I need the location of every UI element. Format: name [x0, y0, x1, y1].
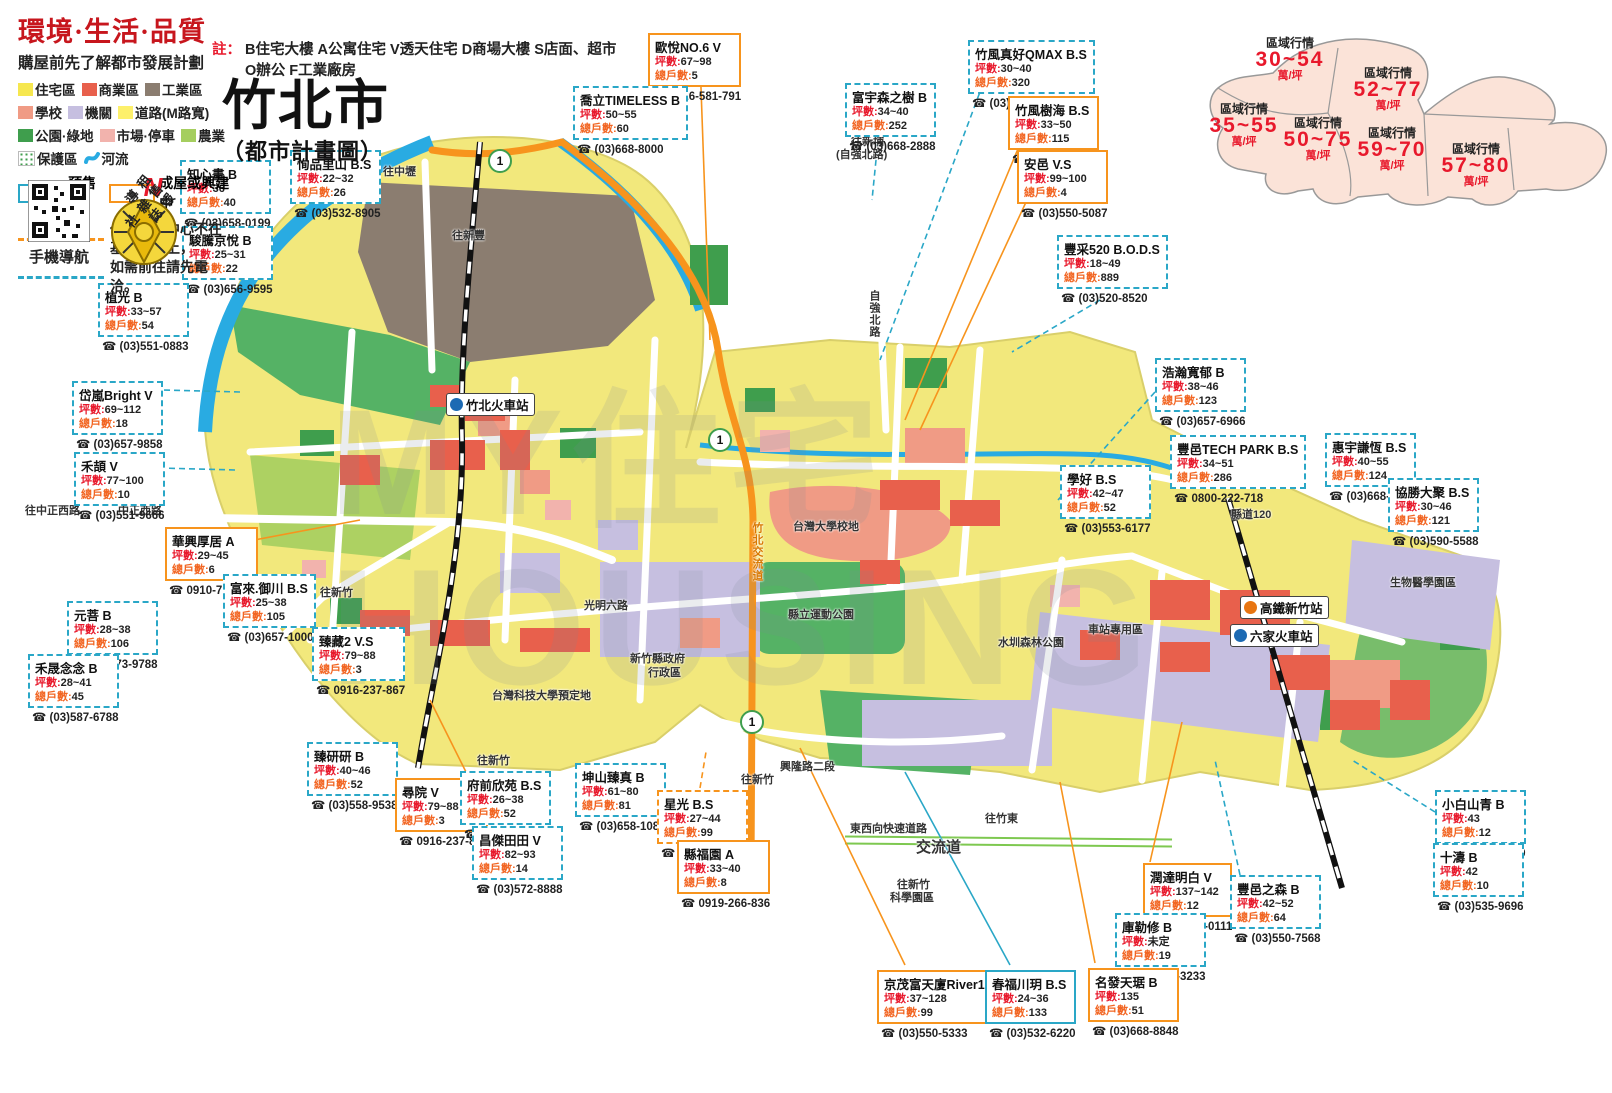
listing-callout[interactable]: 春福川玥 B.S坪數:24~36總戶數:133☎ (03)532-6220 [985, 970, 1076, 1040]
units-label: 總戶數: [1122, 950, 1159, 962]
units-value: 3 [356, 664, 362, 676]
listing-phone[interactable]: ☎ (03)668-8000 [573, 142, 688, 156]
ping-value: 25~38 [256, 597, 287, 609]
zone-unit: 萬/坪 [1256, 70, 1325, 83]
listing-box[interactable]: 歐悅NO.6 V坪數:67~98總戶數:5 [648, 33, 741, 87]
units-label: 總戶數: [1067, 502, 1104, 514]
ping-value: 40~46 [340, 765, 371, 777]
ping-value: 30~46 [1421, 501, 1452, 513]
listing-name: 富宇森之樹 B [852, 87, 928, 106]
listing-name: 禾頡 V [81, 456, 157, 475]
listing-units: 總戶數:121 [1395, 515, 1471, 529]
map-label: 交流道 [916, 836, 961, 857]
listing-units: 總戶數:52 [467, 808, 543, 822]
listing-units: 總戶數:54 [105, 320, 181, 334]
map-label: 往中正西路 [25, 502, 80, 518]
listing-ping: 坪數:79~88 [319, 650, 397, 664]
listing-name: 安邑 V.S [1024, 154, 1100, 173]
listing-ping: 坪數:69~112 [79, 404, 155, 418]
listing-box[interactable]: 昌傑田田 V坪數:82~93總戶數:14 [472, 826, 563, 880]
legend-swatch-color [68, 106, 83, 119]
listing-phone[interactable]: ☎ (03)668-8848 [1088, 1024, 1179, 1038]
ping-value: 50~55 [606, 109, 637, 121]
listing-name: 小白山青 B [1442, 794, 1518, 813]
qr-caption: 手機導航 [28, 246, 90, 267]
units-label: 總戶數: [319, 664, 356, 676]
listing-name: 庫勒修 B [1122, 917, 1198, 936]
listing-callout[interactable]: 禾頡 V坪數:77~100總戶數:10☎ (03)551-9666 [74, 452, 165, 522]
listing-box[interactable]: 富來.御川 B.S坪數:25~38總戶數:105 [223, 574, 316, 628]
legend-swatch-color [100, 129, 115, 142]
listing-ping: 坪數:42~52 [1237, 898, 1313, 912]
units-label: 總戶數: [314, 779, 351, 791]
listing-phone[interactable]: ☎ (03)535-9696 [1433, 899, 1524, 913]
price-zone: 區域行情30~54萬/坪 [1256, 37, 1325, 83]
units-value: 123 [1199, 395, 1217, 407]
legend-swatch-river [84, 151, 100, 165]
map-label: 縣道120 [1231, 506, 1271, 522]
ping-value: 61~80 [608, 786, 639, 798]
price-zone: 區域行情59~70萬/坪 [1358, 127, 1427, 173]
ping-label: 坪數: [172, 550, 198, 562]
units-label: 總戶數: [1015, 133, 1052, 145]
ping-value: 99~100 [1050, 173, 1087, 185]
listing-name: 潤達明白 V [1150, 867, 1224, 886]
legend-label: 道路(M路寬) [135, 102, 209, 122]
zone-unit: 萬/坪 [1284, 150, 1353, 163]
listing-box[interactable]: 豐采520 B.O.D.S坪數:18~49總戶數:889 [1057, 235, 1168, 289]
listing-phone[interactable]: ☎ 0800-222-718 [1170, 491, 1306, 505]
qr-block: 手機導航 [28, 180, 90, 267]
listing-units: 總戶數:52 [1067, 502, 1143, 516]
map-label: 往新竹 [741, 771, 774, 787]
listing-ping: 坪數:18~49 [1064, 258, 1160, 272]
ping-label: 坪數: [81, 475, 107, 487]
units-value: 124 [1369, 470, 1387, 482]
listing-ping: 坪數:40~55 [1332, 456, 1408, 470]
listing-ping: 坪數:77~100 [81, 475, 157, 489]
listing-callout[interactable]: 學好 B.S坪數:42~47總戶數:52☎ (03)553-6177 [1060, 465, 1151, 535]
listing-name: 岱嵐Bright V [79, 385, 155, 404]
route-shield: 1 [740, 710, 764, 734]
listing-phone[interactable]: ☎ (03)657-1000 [223, 630, 316, 644]
listing-callout[interactable]: 豐邑TECH PARK B.S坪數:34~51總戶數:286☎ 0800-222… [1170, 435, 1306, 505]
cyan-dash-sample [18, 276, 104, 279]
map-label: 東西向快速道路 [850, 820, 927, 836]
listing-units: 總戶數:26 [297, 187, 373, 201]
map-label: 台灣科技大學預定地 [492, 687, 591, 703]
units-value: 10 [118, 489, 130, 501]
ping-label: 坪數: [582, 786, 608, 798]
legend-swatch-color [18, 106, 33, 119]
legend-label: 公園·綠地 [35, 125, 94, 145]
units-value: 106 [111, 638, 129, 650]
listing-units: 總戶數:81 [582, 800, 658, 814]
ping-value: 37~128 [910, 993, 947, 1005]
units-value: 4 [1061, 187, 1067, 199]
legend-item: 道路(M路寬) [118, 102, 209, 122]
ping-value: 28~38 [100, 624, 131, 636]
units-value: 3 [439, 815, 445, 827]
listing-phone[interactable]: ☎ (03)550-7568 [1230, 931, 1321, 945]
units-value: 52 [351, 779, 363, 791]
units-label: 總戶數: [1177, 472, 1214, 484]
units-value: 45 [72, 691, 84, 703]
units-label: 總戶數: [1095, 1005, 1132, 1017]
listing-phone[interactable]: ☎ (03)657-6966 [1155, 414, 1246, 428]
ping-label: 坪數: [297, 173, 323, 185]
listing-name: 臻藏2 V.S [319, 631, 397, 650]
listing-ping: 坪數:29~45 [172, 550, 250, 564]
listing-ping: 坪數:33~50 [1015, 119, 1091, 133]
listing-ping: 坪數:135 [1095, 991, 1171, 1005]
listing-phone[interactable]: ☎ (03)587-6788 [28, 710, 119, 724]
units-value: 26 [334, 187, 346, 199]
listing-box[interactable]: 星光 B.S坪數:27~44總戶數:99 [657, 790, 748, 844]
listing-phone[interactable]: ☎ (03)550-5087 [1017, 206, 1108, 220]
map-label: 光明六路 [584, 597, 628, 613]
listing-units: 總戶數:115 [1015, 133, 1091, 147]
units-label: 總戶數: [1440, 880, 1477, 892]
listing-units: 總戶數:18 [79, 418, 155, 432]
units-value: 54 [142, 320, 154, 332]
listing-phone[interactable]: ☎ (03)551-0883 [98, 339, 189, 353]
ping-label: 坪數: [852, 106, 878, 118]
ping-label: 坪數: [1024, 173, 1050, 185]
listing-ping: 坪數:27~44 [664, 813, 740, 827]
units-label: 總戶數: [884, 1007, 921, 1019]
units-label: 總戶數: [479, 863, 516, 875]
listing-box[interactable]: 富宇森之樹 B坪數:34~40總戶數:252 [845, 83, 936, 137]
listing-ping: 坪數:33~57 [105, 306, 181, 320]
station-marker: 竹北火車站 [446, 393, 535, 416]
listing-ping: 坪數:25~38 [230, 597, 308, 611]
listing-box[interactable]: 名發天琚 B坪數:135總戶數:51 [1088, 968, 1179, 1022]
units-value: 99 [701, 827, 713, 839]
units-label: 總戶數: [79, 418, 116, 430]
listing-callout[interactable]: 名發天琚 B坪數:135總戶數:51☎ (03)668-8848 [1088, 968, 1179, 1038]
legend-swatch-color [145, 83, 160, 96]
legend-item: 機關 [68, 102, 112, 122]
units-label: 總戶數: [35, 691, 72, 703]
listing-callout[interactable]: 安邑 V.S坪數:99~100總戶數:4☎ (03)550-5087 [1017, 150, 1108, 220]
legend-label: 保護區 [37, 148, 78, 168]
listing-box[interactable]: 坤山臻真 B坪數:61~80總戶數:81 [575, 763, 666, 817]
listing-phone[interactable]: ☎ (03)657-9858 [72, 437, 163, 451]
ping-label: 坪數: [1095, 991, 1121, 1003]
units-label: 總戶數: [852, 120, 889, 132]
units-value: 64 [1274, 912, 1286, 924]
units-value: 99 [921, 1007, 933, 1019]
listing-box[interactable]: 喬立TIMELESS B坪數:50~55總戶數:60 [573, 86, 688, 140]
listing-units: 總戶數:4 [1024, 187, 1100, 201]
units-label: 總戶數: [582, 800, 619, 812]
units-label: 總戶數: [1150, 900, 1187, 912]
legend-swatch-color [118, 106, 133, 119]
units-value: 121 [1432, 515, 1450, 527]
listing-box[interactable]: 臻藏2 V.S坪數:79~88總戶數:3 [312, 627, 405, 681]
listing-callout[interactable]: 臻研研 B坪數:40~46總戶數:52☎ (03)558-9538 [307, 742, 398, 812]
listing-phone[interactable]: ☎ 0919-266-836 [677, 896, 770, 910]
note-line1: B住宅大樓 A公寓住宅 V透天住宅 D商場大樓 S店面、超市 [245, 42, 616, 58]
listing-units: 總戶數:51 [1095, 1005, 1171, 1019]
legend-item: 公園·綠地 [18, 125, 94, 145]
listing-name: 竹風樹海 B.S [1015, 100, 1091, 119]
listing-ping: 坪數:42 [1440, 866, 1516, 880]
listing-box[interactable]: 學好 B.S坪數:42~47總戶數:52 [1060, 465, 1151, 519]
ping-value: 79~88 [345, 650, 376, 662]
units-value: 105 [267, 611, 285, 623]
listing-box[interactable]: 禾晟念念 B坪數:28~41總戶數:45 [28, 654, 119, 708]
zone-range: 35~55 [1210, 116, 1279, 136]
listing-phone[interactable]: ☎ (03)553-6177 [1060, 521, 1151, 535]
ping-value: 42 [1466, 866, 1478, 878]
listing-units: 總戶數:8 [684, 877, 762, 891]
listing-box[interactable]: 岱嵐Bright V坪數:69~112總戶數:18 [72, 381, 163, 435]
map-label: 生物醫學園區 [1390, 574, 1456, 590]
page-subtitle: （都市計畫圖） [222, 134, 390, 166]
units-label: 總戶數: [1395, 515, 1432, 527]
listing-name: 坤山臻真 B [582, 767, 658, 786]
listing-box[interactable]: 華興厚居 A坪數:29~45總戶數:6 [165, 527, 258, 581]
listing-ping: 坪數:82~93 [479, 849, 555, 863]
listing-units: 總戶數:64 [1237, 912, 1313, 926]
units-label: 總戶數: [81, 489, 118, 501]
listing-ping: 坪數:28~41 [35, 677, 111, 691]
listing-phone[interactable]: ☎ (03)551-9666 [74, 508, 165, 522]
map-label: 往新豐 [452, 227, 485, 243]
ping-value: 79~88 [428, 801, 459, 813]
ping-label: 坪數: [1015, 119, 1041, 131]
listing-ping: 坪數:26~38 [467, 794, 543, 808]
listing-callout[interactable]: 豐邑之森 B坪數:42~52總戶數:64☎ (03)550-7568 [1230, 875, 1321, 945]
zone-range: 57~80 [1442, 156, 1511, 176]
ping-value: 42~47 [1093, 488, 1124, 500]
listing-box[interactable]: 府前欣苑 B.S坪數:26~38總戶數:52 [460, 771, 551, 825]
listing-name: 十濤 B [1440, 847, 1516, 866]
listing-phone[interactable]: ☎ (03)658-1088 [575, 819, 666, 833]
units-value: 6 [209, 564, 215, 576]
legend-label: 機關 [85, 102, 112, 122]
listing-box[interactable]: 十濤 B坪數:42總戶數:10 [1433, 843, 1524, 897]
units-label: 總戶數: [230, 611, 267, 623]
station-marker: 高鐵新竹站 [1240, 596, 1329, 619]
listing-box[interactable]: 竹風樹海 B.S坪數:33~50總戶數:115 [1008, 96, 1099, 150]
ping-label: 坪數: [35, 677, 61, 689]
listing-units: 總戶數:12 [1442, 827, 1518, 841]
legend-swatch-dots [18, 151, 35, 166]
ping-value: 82~93 [505, 849, 536, 861]
listing-units: 總戶數:5 [655, 70, 733, 84]
units-value: 5 [692, 70, 698, 82]
map-label: 往新竹 [320, 584, 353, 600]
route-shield: 1 [488, 149, 512, 173]
ping-label: 坪數: [655, 56, 681, 68]
listing-ping: 坪數:30~40 [975, 63, 1087, 77]
listing-ping: 坪數:34~40 [852, 106, 928, 120]
map-label: 車站專用區 [1088, 621, 1143, 637]
ping-label: 坪數: [79, 404, 105, 416]
listing-ping: 坪數:28~38 [74, 624, 150, 638]
listing-name: 浩瀚寬郁 B [1162, 362, 1238, 381]
ping-value: 34~51 [1203, 458, 1234, 470]
listing-box[interactable]: 縣福園 A坪數:33~40總戶數:8 [677, 840, 770, 894]
listing-box[interactable]: 竹風真好QMAX B.S坪數:30~40總戶數:320 [968, 40, 1095, 94]
listing-callout[interactable]: 協勝大聚 B.S坪數:30~46總戶數:121☎ (03)590-5588 [1388, 478, 1479, 548]
units-label: 總戶數: [74, 638, 111, 650]
ping-label: 坪數: [1064, 258, 1090, 270]
listing-callout[interactable]: 富來.御川 B.S坪數:25~38總戶數:105☎ (03)657-1000 [223, 574, 316, 644]
listing-name: 春福川玥 B.S [992, 974, 1068, 993]
listing-units: 總戶數:123 [1162, 395, 1238, 409]
units-value: 52 [1104, 502, 1116, 514]
legend-item: 農業 [181, 125, 225, 145]
ping-label: 坪數: [1067, 488, 1093, 500]
listing-units: 總戶數:45 [35, 691, 111, 705]
ping-value: 29~45 [198, 550, 229, 562]
ping-label: 坪數: [230, 597, 256, 609]
legend-swatch-color [18, 83, 33, 96]
ping-label: 坪數: [664, 813, 690, 825]
ping-label: 坪數: [580, 109, 606, 121]
listing-callout[interactable]: 喬立TIMELESS B坪數:50~55總戶數:60☎ (03)668-8000 [573, 86, 688, 156]
listing-units: 總戶數:12 [1150, 900, 1224, 914]
listing-box[interactable]: 潤達明白 V坪數:137~142總戶數:12 [1143, 863, 1232, 917]
listing-box[interactable]: 春福川玥 B.S坪數:24~36總戶數:133 [985, 970, 1076, 1024]
legend-label: 工業區 [162, 79, 203, 99]
listing-box[interactable]: 臻研研 B坪數:40~46總戶數:52 [307, 742, 398, 796]
listing-ping: 坪數:24~36 [992, 993, 1068, 1007]
ping-value: 43 [1468, 813, 1480, 825]
ping-value: 38~46 [1188, 381, 1219, 393]
listing-box[interactable]: 小白山青 B坪數:43總戶數:12 [1435, 790, 1526, 844]
legend-item: 河流 [84, 148, 129, 168]
listing-name: 昌傑田田 V [479, 830, 555, 849]
listing-phone[interactable]: ☎ (03)558-9538 [307, 798, 398, 812]
listing-units: 總戶數:889 [1064, 272, 1160, 286]
units-label: 總戶數: [105, 320, 142, 332]
units-label: 總戶數: [992, 1007, 1029, 1019]
listing-units: 總戶數:320 [975, 77, 1087, 91]
zone-range: 59~70 [1358, 140, 1427, 160]
ping-value: 28~41 [61, 677, 92, 689]
ping-value: 18~49 [1090, 258, 1121, 270]
units-label: 總戶數: [975, 77, 1012, 89]
listing-callout[interactable]: 坤山臻真 B坪數:61~80總戶數:81☎ (03)658-1088 [575, 763, 666, 833]
ping-value: 34~40 [878, 106, 909, 118]
listing-units: 總戶數:3 [319, 664, 397, 678]
ping-value: 26~38 [493, 794, 524, 806]
legend-label: 農業 [198, 125, 225, 145]
listing-callout[interactable]: 縣福園 A坪數:33~40總戶數:8☎ 0919-266-836 [677, 840, 770, 910]
route-shield: 1 [708, 428, 732, 452]
listing-phone[interactable]: ☎ (03)520-8520 [1057, 291, 1168, 305]
listing-ping: 坪數:67~98 [655, 56, 733, 70]
ping-label: 坪數: [479, 849, 505, 861]
price-zone: 區域行情52~77萬/坪 [1354, 67, 1423, 113]
listing-ping: 坪數:30~46 [1395, 501, 1471, 515]
listing-name: 富來.御川 B.S [230, 578, 308, 597]
legend-item: 工業區 [145, 79, 203, 99]
listing-box[interactable]: 元菩 B坪數:28~38總戶數:106 [67, 601, 158, 655]
map-label: 自強北路 [866, 290, 882, 338]
listing-callout[interactable]: 昌傑田田 V坪數:82~93總戶數:14☎ (03)572-8888 [472, 826, 563, 896]
price-zone: 區域行情35~55萬/坪 [1210, 103, 1279, 149]
ping-value: 69~112 [105, 404, 141, 416]
listing-ping: 坪數:137~142 [1150, 886, 1224, 900]
listing-ping: 坪數:未定 [1122, 936, 1198, 950]
listing-callout[interactable]: 富宇森之樹 B坪數:34~40總戶數:252☎ (03)668-2888 [845, 83, 936, 153]
ping-value: 77~100 [107, 475, 144, 487]
ping-label: 坪數: [105, 306, 131, 318]
listing-phone[interactable]: ☎ (03)532-8905 [290, 206, 381, 220]
units-value: 18 [116, 418, 128, 430]
units-label: 總戶數: [1237, 912, 1274, 924]
ping-value: 24~36 [1018, 993, 1049, 1005]
legend-label: 市場·停車 [117, 125, 176, 145]
legend: 住宅區商業區工業區學校機關道路(M路寬)公園·綠地市場·停車農業保護區河流 [18, 79, 233, 168]
ping-value: 42~52 [1263, 898, 1294, 910]
ping-label: 坪數: [884, 993, 910, 1005]
ping-label: 坪數: [1440, 866, 1466, 878]
ping-value: 未定 [1148, 936, 1170, 948]
listing-name: 惠宇謙恆 B.S [1332, 437, 1408, 456]
ping-value: 30~40 [1001, 63, 1032, 75]
listing-callout[interactable]: 十濤 B坪數:42總戶數:10☎ (03)535-9696 [1433, 843, 1524, 913]
listing-callout[interactable]: 浩瀚寬郁 B坪數:38~46總戶數:123☎ (03)657-6966 [1155, 358, 1246, 428]
legend-swatch-color [181, 129, 196, 142]
listing-box[interactable]: 安邑 V.S坪數:99~100總戶數:4 [1017, 150, 1108, 204]
ping-label: 坪數: [975, 63, 1001, 75]
listing-box[interactable]: 禾頡 V坪數:77~100總戶數:10 [74, 452, 165, 506]
units-label: 總戶數: [402, 815, 439, 827]
listing-box[interactable]: 庫勒修 B坪數:未定總戶數:19 [1115, 913, 1206, 967]
listing-phone[interactable]: ☎ (03)532-6220 [985, 1026, 1076, 1040]
listing-callout[interactable]: 臻藏2 V.S坪數:79~88總戶數:3☎ 0916-237-867 [312, 627, 405, 697]
ping-value: 22~32 [323, 173, 354, 185]
price-zone: 區域行情50~75萬/坪 [1284, 117, 1353, 163]
listing-callout[interactable]: 豐采520 B.O.D.S坪數:18~49總戶數:889☎ (03)520-85… [1057, 235, 1168, 305]
listing-units: 總戶數:10 [1440, 880, 1516, 894]
listing-box[interactable]: 豐邑之森 B坪數:42~52總戶數:64 [1230, 875, 1321, 929]
listing-ping: 坪數:43 [1442, 813, 1518, 827]
listing-callout[interactable]: 禾晟念念 B坪數:28~41總戶數:45☎ (03)587-6788 [28, 654, 119, 724]
map-poster: MY住宅 HOUSING 環境·生活·品質 購屋前先了解都市發展計劃 住宅區商業… [0, 0, 1612, 1093]
units-value: 10 [1477, 880, 1489, 892]
listing-phone[interactable]: ☎ (03)572-8888 [472, 882, 563, 896]
ping-value: 27~44 [690, 813, 721, 825]
ping-label: 坪數: [402, 801, 428, 813]
listing-ping: 坪數:40~46 [314, 765, 390, 779]
listing-box[interactable]: 豐邑TECH PARK B.S坪數:34~51總戶數:286 [1170, 435, 1306, 489]
listing-units: 總戶數:10 [81, 489, 157, 503]
price-zone: 區域行情57~80萬/坪 [1442, 143, 1511, 189]
ping-value: 135 [1121, 991, 1139, 1003]
listing-name: 歐悅NO.6 V [655, 37, 733, 56]
legend-swatch-color [18, 129, 33, 142]
station-name: 竹北火車站 [466, 395, 529, 414]
listing-callout[interactable]: 岱嵐Bright V坪數:69~112總戶數:18☎ (03)657-9858 [72, 381, 163, 451]
listing-box[interactable]: 協勝大聚 B.S坪數:30~46總戶數:121 [1388, 478, 1479, 532]
compass: N 租售報導雜誌社 [108, 178, 198, 268]
listing-phone[interactable]: ☎ (03)590-5588 [1388, 534, 1479, 548]
listing-phone[interactable]: ☎ (03)668-2888 [845, 139, 936, 153]
ping-label: 坪數: [467, 794, 493, 806]
listing-box[interactable]: 浩瀚寬郁 B坪數:38~46總戶數:123 [1155, 358, 1246, 412]
qr-code[interactable] [28, 180, 90, 242]
listing-phone[interactable]: ☎ 0916-237-867 [312, 683, 405, 697]
rail-icon [450, 398, 463, 411]
